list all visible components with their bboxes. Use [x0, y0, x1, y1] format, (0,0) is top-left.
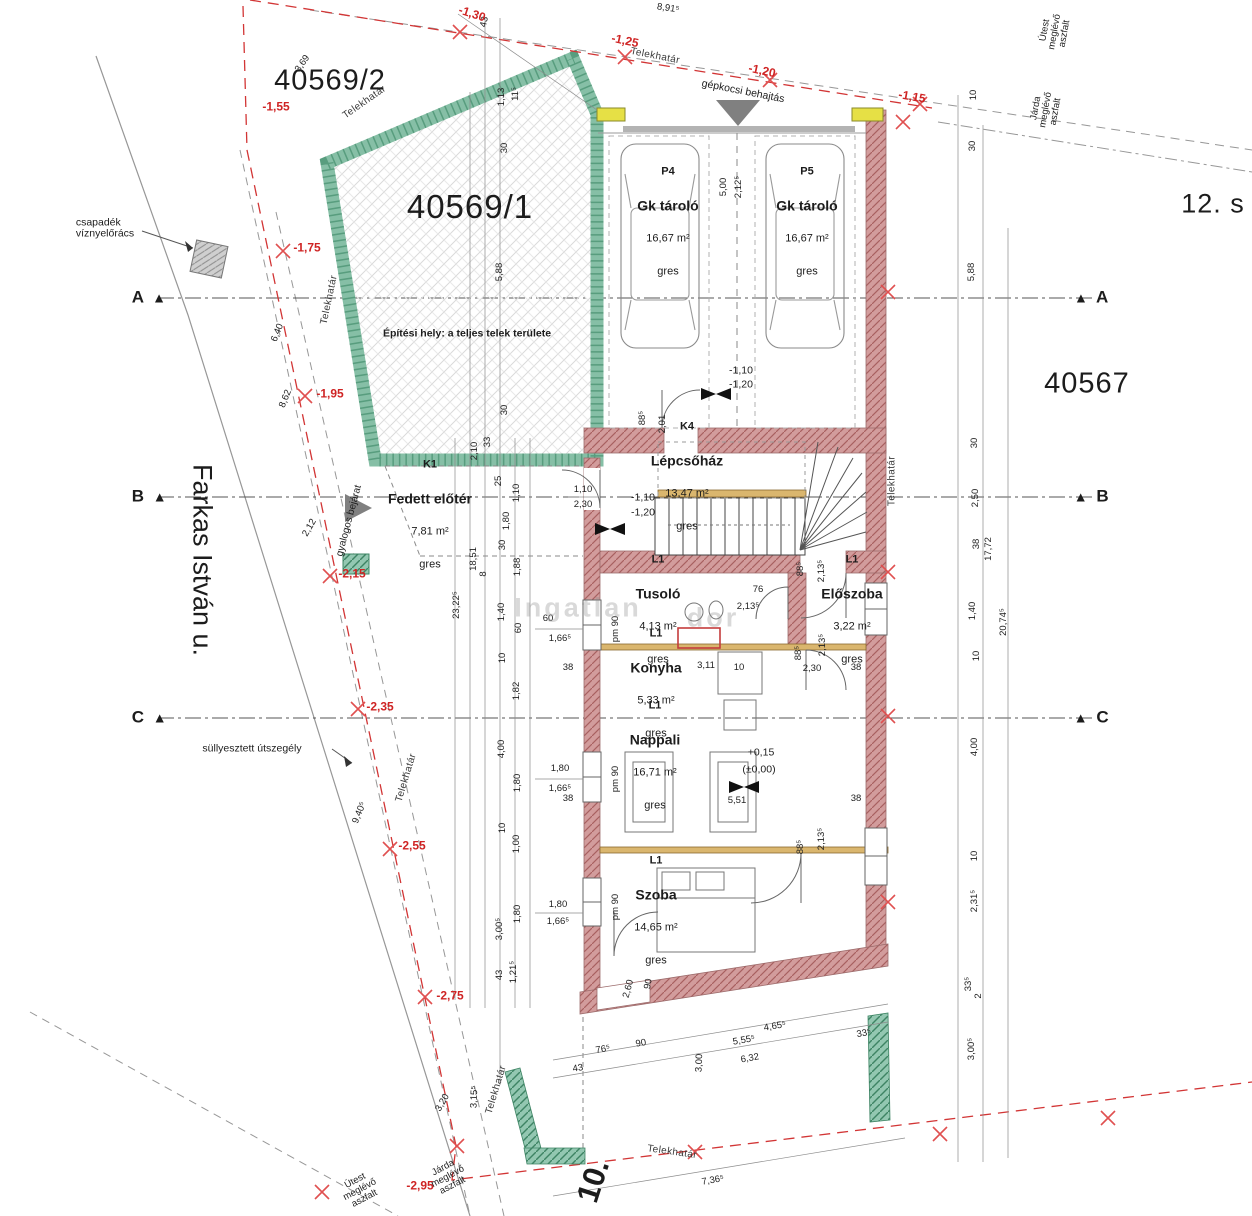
room-code: P4	[637, 166, 698, 178]
room-name: Nappali	[630, 732, 681, 747]
dimension-label: pm 90	[611, 894, 621, 920]
dimension-label: 2,30	[574, 500, 593, 510]
room-area: 16,67 m²	[776, 234, 837, 246]
dimension-label: 17,72	[984, 537, 994, 561]
grid-axis-lines	[158, 298, 1092, 718]
dimension-label: 10	[734, 663, 745, 673]
room-area: 3,22 m²	[821, 622, 882, 634]
site-plan-canvas: 431,1311⁵303,698,91⁵5,002,12⁵10305,88302…	[0, 0, 1252, 1216]
dimension-label: 1,80	[513, 774, 523, 793]
room-floor-finish: gres	[651, 521, 723, 533]
room-name: Előszoba	[821, 586, 882, 601]
dimension-label: 1,82	[512, 682, 522, 701]
dimension-label: 2,12⁵	[734, 176, 744, 198]
dimension-label: 2,13⁵	[817, 828, 827, 850]
level-value-label: -1,55	[262, 101, 289, 114]
dimension-label: 88⁵	[638, 411, 648, 426]
room-floor-finish: gres	[776, 266, 837, 278]
room-name: Szoba	[634, 887, 677, 902]
elevation-label: -1,10	[729, 365, 753, 376]
room-label: L1 Szoba 14,65 m² gres	[634, 834, 677, 987]
dimension-label: 60	[514, 623, 524, 634]
dimension-label: 10	[972, 651, 982, 662]
dimension-label: 2,13⁵	[737, 602, 759, 612]
street-name-label: Farkas István u.	[187, 464, 216, 656]
room-label: L1 Nappali 16,71 m² gres	[630, 679, 681, 832]
triangle-icon: ▲	[1074, 290, 1090, 306]
level-value-label: -1,95	[316, 388, 343, 401]
triangle-icon: ▲	[1074, 489, 1090, 505]
note-building-zone: Építési hely: a teljes telek területe	[383, 328, 551, 339]
dimension-label: 10	[498, 823, 508, 834]
grid-axis-marker: ▲ B	[1033, 469, 1110, 524]
dimension-label: 43	[572, 1063, 584, 1075]
dimension-label: 38	[563, 663, 574, 673]
dimension-label: 76	[753, 585, 764, 595]
dimension-label: 1,40	[968, 602, 978, 621]
parcel-boundary-pentagon	[327, 58, 597, 460]
dimension-label: 10	[970, 851, 980, 862]
dimension-label: 8	[479, 571, 489, 576]
room-floor-finish: gres	[821, 654, 882, 666]
room-label: K4 Lépcsőház 13,47 m² gres	[651, 400, 723, 553]
room-code: L1	[636, 554, 681, 566]
grid-axis-marker: A ▲	[92, 270, 168, 325]
room-floor-finish: gres	[637, 266, 698, 278]
level-value-label: -2,55	[398, 840, 425, 853]
dimension-label: 30	[498, 540, 508, 551]
grid-axis-marker: C ▲	[91, 690, 168, 745]
parcel-number-40569-2: 40569/2	[274, 65, 386, 96]
dimension-label: 1,80	[513, 905, 523, 924]
dimension-label: 1,80	[551, 764, 570, 774]
dimension-label: 3,11	[697, 661, 715, 671]
level-value-label: -2,75	[436, 990, 463, 1003]
room-area: 16,71 m²	[630, 768, 681, 780]
dimension-label: 2,31⁵	[970, 890, 980, 912]
dimension-label: 30	[970, 438, 980, 449]
dimension-label: 5,00	[719, 178, 729, 197]
room-label: K1 Fedett előtér 7,81 m² gres	[388, 438, 472, 591]
dimension-label: 38	[563, 794, 574, 804]
room-floor-finish: gres	[634, 955, 677, 967]
entry-arrow-vehicle	[716, 100, 760, 126]
room-floor-finish: gres	[630, 800, 681, 812]
dimension-label: 5,51	[728, 796, 747, 806]
note-rain-grate: csapadék víznyelőrács	[76, 218, 134, 241]
dimension-label: 10	[498, 653, 508, 664]
room-name: Tusoló	[636, 586, 681, 601]
dimension-label: 4,00	[970, 738, 980, 757]
room-code: L1	[630, 700, 681, 712]
room-label: P5 Gk tároló 16,67 m² gres	[776, 145, 837, 298]
dimension-label: 38	[851, 794, 862, 804]
elevation-label: (±0,00)	[742, 764, 775, 775]
level-value-label: -2,35	[366, 701, 393, 714]
dimension-label: 3,00	[695, 1054, 706, 1073]
dimension-label: 3,15⁵	[469, 1086, 480, 1109]
watermark-text: dor	[687, 603, 740, 632]
street-number-label: 12. s	[1181, 189, 1245, 218]
dimension-label: 23,22⁵	[452, 591, 462, 619]
dimension-label: 2,50	[971, 489, 981, 508]
dimension-label: 20,74⁵	[999, 608, 1009, 636]
watermark-text: Ingatlan	[514, 593, 642, 622]
room-code: K4	[651, 421, 723, 433]
dimension-label: 33⁵	[964, 977, 974, 992]
dimension-label: 1,13	[497, 88, 507, 107]
room-code: L1	[634, 855, 677, 867]
dimension-label: 1,00	[512, 835, 522, 854]
dimension-label: 3,00⁵	[495, 918, 505, 940]
dimension-label: 30	[500, 143, 510, 154]
dimension-label: 25	[494, 476, 504, 487]
dimension-label: 4,00	[497, 740, 507, 759]
dimension-label: 1,10	[512, 484, 522, 503]
telekhatar-label: Telekhatár	[888, 456, 899, 506]
room-area: 16,67 m²	[637, 234, 698, 246]
dimension-label: 43	[495, 970, 505, 981]
room-code: L1	[630, 628, 681, 640]
room-area: 14,65 m²	[634, 923, 677, 935]
parcel-number-40569-1: 40569/1	[407, 189, 533, 225]
dimension-label: 10	[969, 90, 979, 101]
level-value-label: -1,75	[293, 242, 320, 255]
dimension-label: 1,88	[513, 558, 523, 577]
dimension-label: 1,10	[574, 485, 593, 495]
dimension-label: 1,21⁵	[509, 961, 519, 983]
dimension-label: 30	[968, 141, 978, 152]
grid-axis-marker: B ▲	[91, 469, 168, 524]
dimension-label: 2	[974, 993, 984, 998]
triangle-icon: ▲	[152, 290, 168, 306]
room-name: Gk tároló	[637, 198, 698, 213]
dimension-label: 88⁵	[796, 562, 806, 577]
triangle-icon: ▲	[153, 710, 169, 726]
dimension-label: 5,88	[967, 263, 977, 282]
dimension-label: 90	[635, 1038, 647, 1050]
room-area: 13,47 m²	[651, 489, 723, 501]
dimension-label: 1,66⁵	[547, 917, 569, 927]
room-area: 7,81 m²	[388, 527, 472, 539]
dimension-label: 1,80	[549, 900, 568, 910]
grid-axis-marker: ▲ C	[1033, 690, 1110, 745]
room-floor-finish: gres	[388, 559, 472, 571]
room-name: Lépcsőház	[651, 453, 723, 468]
room-label: L1 Előszoba 3,22 m² gres	[821, 533, 882, 686]
level-value-label: -2,15	[338, 568, 365, 581]
dimension-label: 5,88	[495, 263, 505, 282]
note-sunken-curb: süllyesztett útszegély	[202, 743, 301, 754]
dimension-label: 38	[972, 539, 982, 550]
triangle-icon: ▲	[153, 489, 169, 505]
dimension-label: 3,00⁵	[967, 1038, 977, 1060]
room-label: P4 Gk tároló 16,67 m² gres	[637, 145, 698, 298]
room-code: L1	[821, 554, 882, 566]
dimension-label: 1,66⁵	[549, 634, 571, 644]
room-name: Fedett előtér	[388, 491, 472, 506]
triangle-icon: ▲	[1074, 710, 1090, 726]
dimension-label: pm 90	[611, 766, 621, 792]
elevation-label: +0,15	[748, 747, 775, 758]
dimension-label: 1,40	[497, 603, 507, 622]
dimension-label: 30	[500, 405, 510, 416]
dimension-label: 88⁵	[794, 646, 804, 661]
dimension-label: 2,30	[803, 664, 822, 674]
room-code: K1	[388, 459, 472, 471]
room-code: P5	[776, 166, 837, 178]
room-name: Gk tároló	[776, 198, 837, 213]
elevation-label: -1,20	[729, 379, 753, 390]
dimension-label: 1,80	[502, 512, 512, 531]
dimension-label: 88⁵	[796, 840, 806, 855]
parcel-number-40567: 40567	[1044, 368, 1130, 399]
grid-axis-marker: ▲ A	[1034, 270, 1111, 325]
dimension-label: 33	[483, 437, 493, 448]
dimension-label: 11⁵	[511, 87, 521, 101]
room-name: Konyha	[630, 660, 681, 675]
